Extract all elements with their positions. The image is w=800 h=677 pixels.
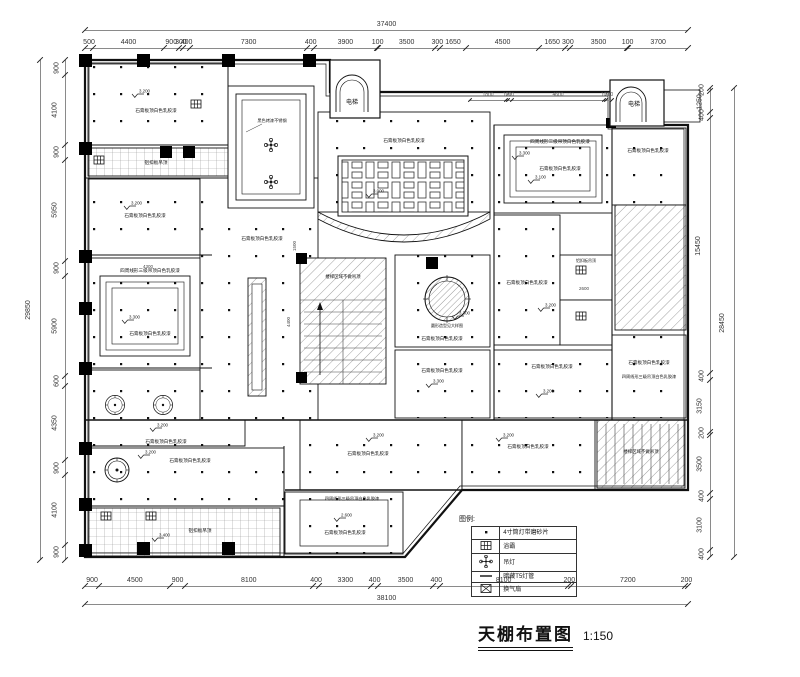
room-label: 石膏板顶白色乳胶漆: [324, 529, 366, 536]
dimension-line: [85, 30, 688, 31]
dimension-value: 3500: [399, 39, 415, 46]
downlight-dot-icon: [472, 527, 500, 540]
dim-left-total: 29850: [30, 60, 44, 560]
elevator-label: 电梯: [346, 98, 358, 106]
dimension-value: 8100: [241, 577, 257, 584]
light-trough: [248, 278, 266, 396]
svg-text:4400: 4400: [286, 316, 291, 327]
dimension-value: 400: [699, 109, 706, 121]
dimension-line: [40, 60, 41, 560]
dimension-value: 7200: [620, 577, 636, 584]
svg-text:2600: 2600: [579, 286, 590, 291]
room-label: 石膏板顶白色乳胶漆: [531, 363, 573, 370]
room-topright: [612, 128, 686, 205]
drawing-sheet: 电梯 电梯 石膏板顶白色乳胶漆 石膏板顶白色乳胶漆 四周线形三级吊顶白色乳胶漆 …: [0, 0, 800, 677]
dimension-value: 400: [431, 577, 443, 584]
room-label: 石膏板顶白色乳胶漆: [241, 235, 283, 242]
drawing-scale: 1:150: [583, 629, 613, 643]
room-label: 铝扣板吊顶: [576, 257, 596, 263]
pendant-lamp-icon: [472, 554, 500, 572]
dimension-value: 300: [605, 93, 613, 98]
legend-row: 浴霸: [472, 540, 577, 554]
legend-header: 图例:: [459, 514, 577, 524]
dimension-value: 400: [699, 490, 706, 502]
legend-row: 4寸筒灯带磨砂片: [472, 527, 577, 540]
elevator-top-center: [330, 60, 380, 118]
svg-text:3.200: 3.200: [139, 89, 151, 94]
room-label: 石膏板顶白色乳胶漆: [347, 450, 389, 457]
room-left5: [88, 448, 284, 506]
dimension-value: 400: [369, 577, 381, 584]
dimension-value: 200: [506, 93, 514, 98]
svg-text:3.200: 3.200: [373, 433, 385, 438]
room-ceiling-fills: [88, 63, 686, 556]
svg-text:3.300: 3.300: [459, 311, 471, 316]
dimension-line: [85, 586, 688, 587]
legend-table: 4寸筒灯带磨砂片 浴霸 吊灯: [471, 526, 577, 597]
dimension-value: 300: [431, 39, 443, 46]
dimension-value: 500: [83, 39, 95, 46]
dimension-line: [470, 100, 612, 101]
legend: 图例: 4寸筒灯带磨砂片 浴霸: [459, 514, 577, 597]
dimension-value: 1250: [697, 94, 704, 110]
dimension-value: 900: [54, 62, 61, 74]
lattice-ceiling-feature: [338, 156, 468, 216]
dimension-value: 100: [372, 39, 384, 46]
room-label: 石膏板顶白色乳胶漆: [135, 107, 177, 114]
dimension-value: 400: [699, 371, 706, 383]
room-label: 石膏板顶白色乳胶漆: [421, 367, 463, 374]
svg-text:3.200: 3.200: [145, 450, 157, 455]
dimension-value: 29850: [25, 300, 32, 319]
exhaust-fan-icon: [472, 583, 500, 597]
dimension-line: [85, 48, 688, 49]
dimension-value: 1650: [544, 39, 560, 46]
room-label: 石膏板顶白色乳胶漆: [383, 137, 425, 144]
dimension-value: 900: [54, 263, 61, 275]
legend-label: 吊灯: [500, 554, 577, 572]
dimension-value: 3500: [697, 456, 704, 472]
bath-room-2: [560, 300, 612, 345]
dimension-value: 100: [622, 39, 634, 46]
room-topleft: [88, 63, 228, 145]
tile-area-bottom: [88, 508, 280, 556]
svg-text:3.000: 3.000: [373, 189, 385, 194]
dimension-value: 1800: [482, 93, 493, 98]
svg-text:3.200: 3.200: [543, 389, 555, 394]
legend-row: 暗藏T5灯管: [472, 572, 577, 583]
room-label: 石膏板顶白色乳胶漆: [506, 279, 548, 286]
dimension-value: 3500: [591, 39, 607, 46]
dimension-value: 400: [305, 39, 317, 46]
room-label: 四周线形三级吊顶白色乳胶漆: [530, 138, 590, 145]
svg-text:3.200: 3.200: [503, 433, 515, 438]
dim-sub-topright: 18001002004600100300: [470, 90, 612, 102]
dimension-value: 900: [54, 462, 61, 474]
room-label: 四周线形三级吊顶白色乳胶漆: [325, 495, 379, 502]
dimension-value: 3700: [650, 39, 666, 46]
dim-right-segments: 200125040015450400315020035004003100400: [700, 88, 714, 557]
svg-text:3.300: 3.300: [433, 379, 445, 384]
svg-text:3.200: 3.200: [545, 303, 557, 308]
room-label: 石膏板顶白色乳胶漆: [145, 438, 187, 445]
dimension-value: 4100: [52, 102, 59, 118]
room-coffered-left: [88, 258, 212, 368]
svg-text:3.100: 3.100: [535, 175, 547, 180]
dimension-value: 4100: [52, 502, 59, 518]
legend-row: 吊灯: [472, 554, 577, 572]
dimension-value: 400: [699, 548, 706, 560]
dimension-line: [65, 60, 66, 560]
dimension-value: 3100: [697, 517, 704, 533]
dimension-value: 200: [681, 577, 693, 584]
room-label: 石膏板顶白色乳胶漆: [539, 165, 581, 172]
room-label: 石膏板顶白色乳胶漆: [129, 330, 171, 337]
legend-label: 浴霸: [500, 540, 577, 554]
t5-tube-icon: [472, 572, 500, 583]
material-label: 黑色烤漆不锈钢: [257, 117, 286, 124]
dimension-value: 5950: [52, 203, 59, 219]
dim-bottom-total: 38100: [85, 594, 688, 608]
svg-text:1500: 1500: [292, 240, 297, 251]
elevator-top-right: [610, 80, 700, 126]
dimension-line: [85, 604, 688, 605]
legend-row: 换气扇: [472, 583, 577, 597]
room-label: 四周线形三级吊顶白色乳胶漆: [622, 373, 676, 380]
dimension-value: 300: [562, 39, 574, 46]
svg-text:3.200: 3.200: [157, 423, 169, 428]
dimension-value: 400: [310, 577, 322, 584]
dimension-value: 15450: [695, 236, 702, 255]
room-label: 石膏板顶白色乳胶漆: [124, 212, 166, 219]
dimension-value: 4350: [52, 415, 59, 431]
dimension-value: 200: [699, 428, 706, 440]
room-label: 石膏板顶白色乳胶漆: [169, 457, 211, 464]
elevator-label: 电梯: [628, 100, 640, 108]
bath-heater-icon: [472, 540, 500, 554]
dimension-value: 38100: [377, 595, 396, 602]
room-label: 石膏板顶白色乳胶漆: [507, 443, 549, 450]
room-label: 铝扣板吊顶: [145, 159, 168, 166]
stair-label: 楼梯区域不做吊顶: [325, 273, 361, 280]
svg-text:4300: 4300: [143, 264, 154, 269]
dimension-value: 1650: [445, 39, 461, 46]
dimension-value: 3500: [398, 577, 414, 584]
room-label: 铝扣板吊顶: [189, 527, 212, 534]
circle-feature-label: 圆形造型见大样图: [431, 322, 463, 328]
svg-text:3.300: 3.300: [129, 315, 141, 320]
dimension-value: 3300: [338, 577, 354, 584]
dimension-value: 5900: [52, 318, 59, 334]
dimension-value: 28450: [719, 313, 726, 332]
dimension-value: 7300: [241, 39, 257, 46]
dim-bottom-segments: 9004500900810040033004003500400810020072…: [85, 576, 688, 590]
dimension-value: 4500: [495, 39, 511, 46]
dimension-value: 4400: [121, 39, 137, 46]
dim-left-segments: 90041009005950900590060043509004100900: [55, 60, 69, 560]
svg-text:3.300: 3.300: [519, 151, 531, 156]
room-mid-lower: [395, 350, 490, 418]
dim-right-total: 28450: [724, 88, 738, 557]
dimension-value: 400: [181, 39, 193, 46]
svg-text:3.200: 3.200: [131, 201, 143, 206]
dimension-value: 4600: [552, 93, 563, 98]
dimension-value: 900: [172, 577, 184, 584]
dimension-value: 3150: [697, 398, 704, 414]
room-bottom2: [285, 492, 403, 554]
dimension-value: 900: [54, 547, 61, 559]
open-area-hatch: [615, 205, 686, 330]
dimension-value: 4500: [127, 577, 143, 584]
stair-label: 楼梯区域不做吊顶: [623, 448, 659, 455]
dim-top-segments: 5004400900300400730040039001003500300165…: [85, 38, 688, 52]
room-label: 石膏板顶白色乳胶漆: [627, 147, 669, 154]
room-right-lower: [494, 350, 612, 418]
title-block: 天棚布置图 1:150: [478, 620, 613, 651]
dimension-value: 600: [54, 375, 61, 387]
drawing-title: 天棚布置图: [478, 620, 573, 651]
dimension-line: [710, 88, 711, 557]
corridor-bottom: [462, 420, 595, 490]
dimension-value: 37400: [377, 21, 396, 28]
legend-label: 暗藏T5灯管: [500, 572, 577, 583]
dimension-value: 900: [86, 577, 98, 584]
svg-text:2.600: 2.600: [341, 513, 353, 518]
dimension-value: 900: [54, 147, 61, 159]
room-label: 石膏板顶白色乳胶漆: [421, 335, 463, 342]
stair-2: [597, 420, 685, 488]
dimension-value: 3900: [338, 39, 354, 46]
dim-top-total: 37400: [85, 20, 688, 34]
legend-label: 4寸筒灯带磨砂片: [500, 527, 577, 540]
legend-label: 换气扇: [500, 583, 577, 597]
dimension-line: [734, 88, 735, 557]
room-label: 石膏板顶白色乳胶漆: [628, 359, 670, 366]
svg-text:3.400: 3.400: [159, 533, 171, 538]
